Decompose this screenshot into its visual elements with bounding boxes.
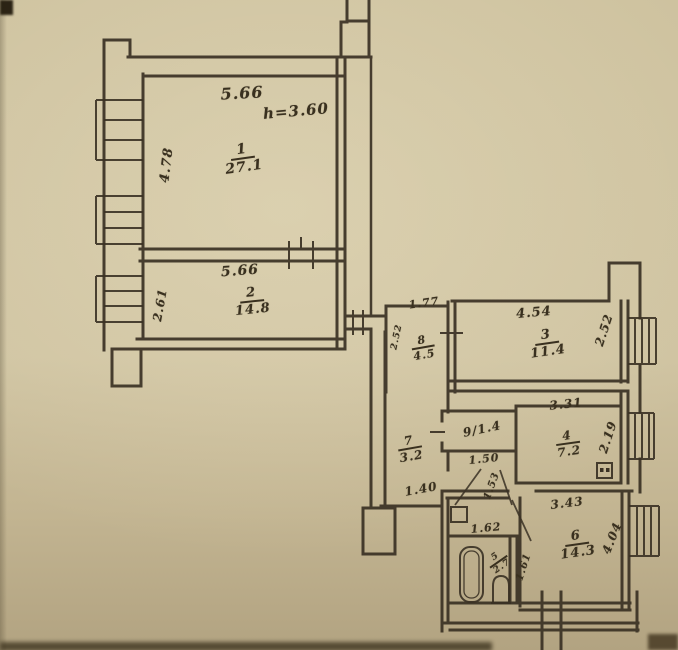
toilet-icon — [491, 576, 511, 603]
room3-label: 311.4 — [527, 325, 567, 361]
room4-area: 7.2 — [556, 442, 582, 459]
room7-label: 73.2 — [396, 432, 425, 465]
room1-label: 127.1 — [222, 139, 264, 177]
room2-width-dim: 5.66 — [220, 262, 259, 281]
room3-width-dim: 4.54 — [516, 304, 553, 322]
vent-dots — [600, 468, 610, 472]
room1-width-dim: 5.66 — [220, 82, 264, 103]
room2-label: 214.8 — [233, 284, 272, 319]
room6-label: 614.3 — [557, 526, 597, 562]
room4-label: 47.2 — [554, 427, 582, 459]
windows — [96, 100, 659, 556]
floor-plan-scan: 5.66 h=3.60 127.1 4.78 5.66 214.8 2.61 1… — [0, 0, 678, 650]
dim-162: 1.62 — [470, 520, 502, 536]
room8-label: 84.5 — [409, 332, 436, 363]
